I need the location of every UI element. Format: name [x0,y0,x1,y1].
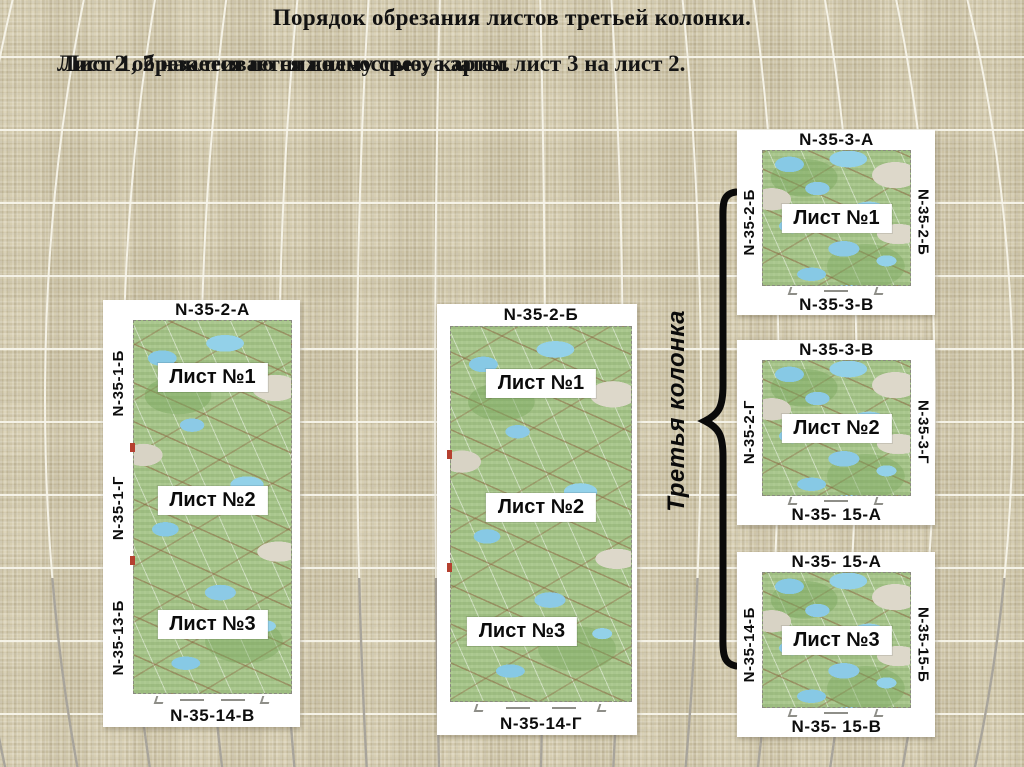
adjacent-sheet-label-top: N-35-2-Б [450,305,632,325]
scale-bar [762,708,911,717]
left-margin-labels: N-35-2-Г [737,360,762,505]
map-image-wrap: Лист №1 Лист №2 Лист №3 [450,326,632,702]
adjacent-sheet-label-right: N-35-15-Б [915,607,932,682]
sheet-number-label: Лист №1 [486,369,596,398]
scale-bar [133,694,292,705]
right-margin-labels: N-35-3-Г [911,360,935,505]
adjacent-sheet-label-left: N-35-1-Г [110,476,127,540]
sheet-number-label: Лист №3 [781,626,891,655]
presentation-slide: Порядок обрезания листов третьей колонки… [0,0,1024,767]
subtitle-line-b: Лист 1, 2 наклеивается полностью, а зате… [62,51,685,77]
registration-tick [130,556,135,565]
adjacent-sheet-label-right: N-35-2-Б [915,189,932,255]
right-margin-labels: N-35-15-Б [911,572,935,717]
map-card-sheet3: N-35- 15-А N-35-14-Б Лист №3 N-35-15-Б N… [737,552,935,737]
registration-tick [447,563,452,572]
left-margin-labels: N-35-2-Б [737,150,762,295]
map-image-wrap: Лист №1 [762,150,911,286]
left-margin-labels: N-35-1-Б N-35-1-Г N-35-13-Б [103,320,133,705]
slide-title: Порядок обрезания листов третьей колонки… [0,5,1024,31]
adjacent-sheet-label-left: N-35-14-Б [741,607,758,682]
adjacent-sheet-label-top: N-35-3-В [762,340,911,360]
scale-bar [762,286,911,295]
sheet-number-label: Лист №2 [157,486,267,515]
registration-tick [447,450,452,459]
brace-label-wrap: Третья колонка [660,296,694,526]
adjacent-sheet-label-bottom: N-35-14-Г [450,714,632,734]
adjacent-sheet-label-top: N-35- 15-А [762,552,911,572]
left-margin-labels: N-35-14-Б [737,572,762,717]
adjacent-sheet-label-left: N-35-13-Б [110,600,127,675]
map-image-wrap: Лист №2 [762,360,911,496]
map-card-column2: N-35-2-Б Лист №1 Лист №2 Лист №3 N-35-14… [437,304,637,735]
left-margin [437,326,450,713]
adjacent-sheet-label-top: N-35-2-А [133,300,292,320]
sheet-number-label: Лист №2 [486,493,596,522]
sheet-number-label: Лист №2 [781,414,891,443]
adjacent-sheet-label-left: N-35-2-Г [741,400,758,464]
map-card-sheet1: N-35-3-А N-35-2-Б Лист №1 N-35-2-Б N-35-… [737,130,935,315]
right-margin-labels: N-35-2-Б [911,150,935,295]
adjacent-sheet-label-bottom: N-35-3-В [762,295,911,315]
sheet-number-label: Лист №3 [157,610,267,639]
adjacent-sheet-label-top: N-35-3-А [762,130,911,150]
scale-bar [450,702,632,713]
map-image-wrap: Лист №1 Лист №2 Лист №3 [133,320,292,694]
sheet-number-label: Лист №1 [157,363,267,392]
sheet-number-label: Лист №1 [781,204,891,233]
sheet-number-label: Лист №3 [467,617,577,646]
adjacent-sheet-label-left: N-35-1-Б [110,350,127,416]
adjacent-sheet-label-bottom: N-35-14-В [133,706,292,726]
scale-bar [762,496,911,505]
adjacent-sheet-label-right: N-35-3-Г [915,400,932,464]
map-card-sheet2: N-35-3-В N-35-2-Г Лист №2 N-35-3-Г N-35-… [737,340,935,525]
map-card-column1: N-35-2-А N-35-1-Б N-35-1-Г N-35-13-Б Лис… [103,300,300,727]
registration-tick [130,443,135,452]
adjacent-sheet-label-left: N-35-2-Б [741,189,758,255]
map-image-wrap: Лист №3 [762,572,911,708]
adjacent-sheet-label-bottom: N-35- 15-А [762,505,911,525]
third-column-caption: Третья колонка [663,310,691,512]
adjacent-sheet-label-bottom: N-35- 15-В [762,717,911,737]
